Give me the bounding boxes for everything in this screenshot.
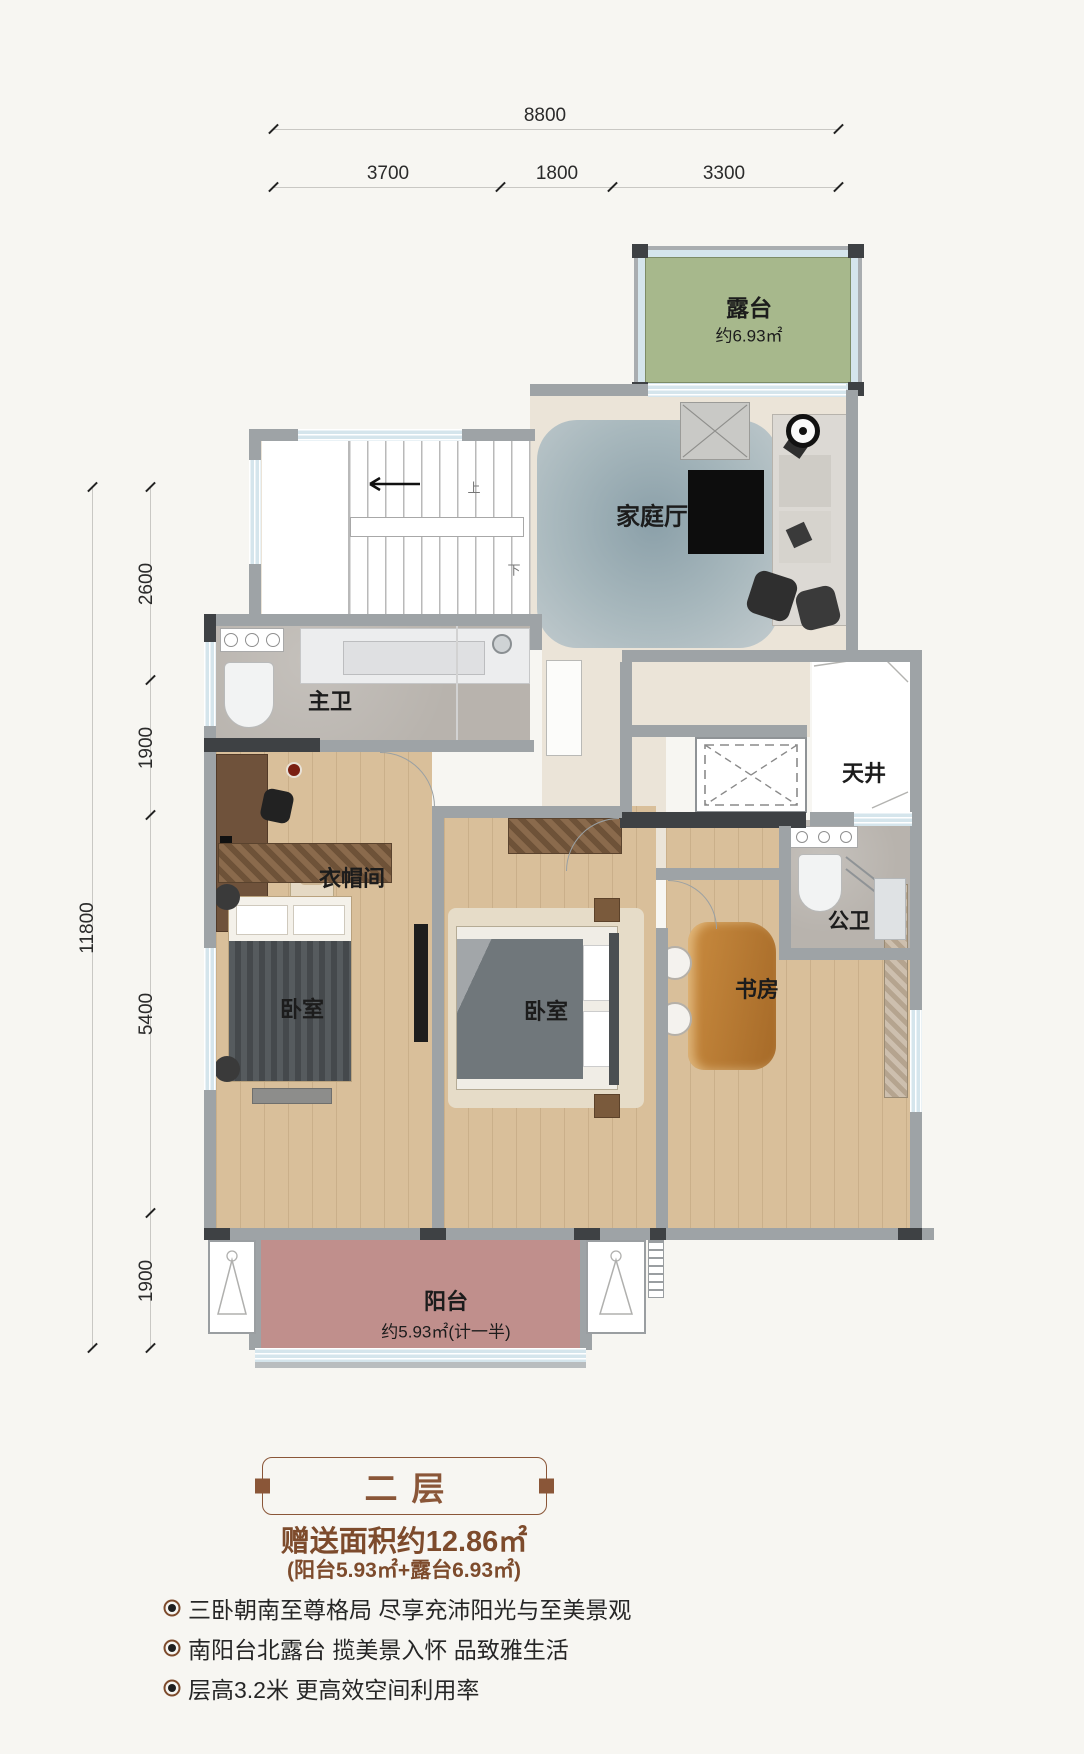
cabinet-knob (818, 831, 830, 843)
selling-point-text: 三卧朝南至尊格局 尽享充沛阳光与至美景观 (188, 1591, 631, 1625)
title-square-right (539, 1479, 554, 1494)
column (632, 244, 648, 258)
bullet-icon (168, 1684, 176, 1692)
window (298, 429, 462, 441)
balcony-label: 阳台 (424, 1284, 468, 1316)
wall-segment (656, 928, 668, 1240)
vanity-basin (343, 641, 485, 675)
dim-line-top-total (273, 129, 838, 130)
wall-segment (620, 662, 632, 814)
coffee-table (688, 470, 764, 554)
flue-symbol (588, 1242, 644, 1332)
dim-top-seg-2: 1800 (536, 163, 578, 185)
cabinet-knob (224, 633, 238, 647)
window (910, 1010, 922, 1112)
cabinet-knob (266, 633, 280, 647)
master-bath-label: 主卫 (308, 684, 352, 716)
wall-segment (846, 390, 858, 662)
wall-segment (810, 812, 854, 826)
cabinet-knob (796, 831, 808, 843)
dim-top-total: 8800 (524, 105, 566, 127)
balcony-area-label: 约5.93㎡(计一半) (381, 1318, 510, 1343)
stair-down-label: 下 (507, 560, 520, 579)
utility-box-right (586, 1240, 646, 1334)
cloakroom-label: 衣帽间 (319, 861, 385, 893)
tv-panel (414, 924, 428, 1042)
column (848, 244, 864, 258)
bath-cabinet-public (790, 826, 858, 848)
wall-segment (432, 806, 444, 1240)
elevator-shaft (695, 737, 807, 813)
dim-left-total: 11800 (77, 902, 99, 953)
shower-head (492, 634, 512, 654)
selling-point-row: 南阳台北露台 揽美景入怀 品致雅生活 (164, 1628, 631, 1668)
dim-left-seg-3: 5400 (136, 993, 158, 1035)
bullet-icon (168, 1604, 176, 1612)
nightstand-chair (214, 884, 240, 910)
plant-nook (546, 660, 582, 756)
dim-line-left-segments (150, 487, 151, 1348)
vanity-public (874, 878, 906, 940)
cabinet-knob (245, 633, 259, 647)
floor-title-box: 二层 (262, 1457, 547, 1515)
balcony-glass (255, 1348, 586, 1362)
dim-line-top-segments (273, 187, 838, 188)
bonus-detail-text: (阳台5.93㎡+露台6.93㎡) (104, 1554, 704, 1584)
wall-segment (779, 826, 791, 960)
study-label: 书房 (735, 972, 779, 1004)
title-square-left (255, 1479, 270, 1494)
selling-point-row: 层高3.2米 更高效空间利用率 (164, 1668, 631, 1708)
selling-point-text: 南阳台北露台 揽美景入怀 品致雅生活 (188, 1631, 569, 1665)
stair-direction-arrow (354, 473, 424, 495)
headboard (609, 933, 619, 1085)
wall-segment (530, 384, 648, 396)
sofa-cushion (779, 455, 831, 507)
dim-top-seg-1: 3700 (367, 163, 409, 185)
balcony-sill (255, 1362, 586, 1368)
toilet-public (798, 854, 842, 912)
wall-segment (632, 725, 807, 737)
selling-point-row: 三卧朝南至尊格局 尽享充沛阳光与至美景观 (164, 1588, 631, 1628)
pillow (293, 905, 345, 935)
nightstand-chair (214, 1056, 240, 1082)
lightwell-label: 天井 (842, 756, 886, 788)
column (204, 738, 320, 752)
column (420, 1228, 446, 1240)
bedroom-mid-label: 卧室 (524, 994, 568, 1026)
toilet-master (224, 662, 274, 728)
column (650, 1228, 666, 1240)
pillow (236, 905, 288, 935)
wall-segment (910, 650, 922, 1240)
terrace-area-label: 约6.93㎡ (715, 322, 782, 347)
fan-ornament (786, 414, 820, 448)
floorplan-page: 8800 3700 1800 3300 11800 2600 1900 5400… (0, 0, 1084, 1754)
family-hall-label: 家庭厅 (616, 497, 688, 532)
nightstand (594, 1094, 620, 1118)
wall-segment (434, 806, 622, 818)
wall-segment (656, 868, 786, 880)
console-x-pattern (681, 403, 749, 459)
fan-center (799, 427, 807, 435)
console-table (680, 402, 750, 460)
stair-rail (350, 517, 524, 537)
ladder-detail (648, 1240, 664, 1298)
window (854, 812, 912, 826)
window (249, 460, 261, 564)
wall-segment (779, 948, 922, 960)
dim-left-seg-1: 2600 (136, 563, 158, 605)
corridor-floor (542, 650, 810, 737)
window (204, 948, 216, 1090)
lightwell-boundary (812, 652, 910, 812)
flue-symbol (210, 1242, 254, 1332)
pillow (583, 1011, 611, 1067)
bedroom-left-label: 卧室 (280, 992, 324, 1024)
column (898, 1228, 922, 1240)
bed-left (228, 896, 352, 1082)
elevator-x-pattern (697, 739, 805, 811)
dim-left-seg-4: 1900 (136, 1260, 158, 1302)
bed-bench (252, 1088, 332, 1104)
dim-top-seg-3: 3300 (703, 163, 745, 185)
bullet-icon (168, 1644, 176, 1652)
column (204, 1228, 230, 1240)
selling-point-text: 层高3.2米 更高效空间利用率 (188, 1671, 479, 1705)
window (648, 384, 846, 397)
staircase: 上 下 (262, 441, 530, 617)
utility-box-left (208, 1240, 256, 1334)
terrace-label: 露台 (726, 289, 772, 323)
cabinet-knob (840, 831, 852, 843)
selling-points: 三卧朝南至尊格局 尽享充沛阳光与至美景观 南阳台北露台 揽美景入怀 品致雅生活 … (164, 1588, 631, 1708)
stair-up-label: 上 (467, 478, 480, 497)
wall-segment (204, 1228, 934, 1240)
floor-title: 二层 (351, 1462, 459, 1510)
wall-segment (530, 614, 542, 650)
window (204, 642, 216, 726)
shower-glass (456, 626, 458, 740)
column (574, 1228, 600, 1240)
wall-segment (210, 614, 542, 626)
nightstand (594, 898, 620, 922)
public-bath-label: 公卫 (828, 905, 870, 935)
dim-left-seg-2: 1900 (136, 727, 158, 769)
wall-segment (622, 650, 922, 662)
pillow (583, 945, 611, 1001)
bath-cabinet (220, 628, 284, 652)
coffee-cup (286, 762, 302, 778)
